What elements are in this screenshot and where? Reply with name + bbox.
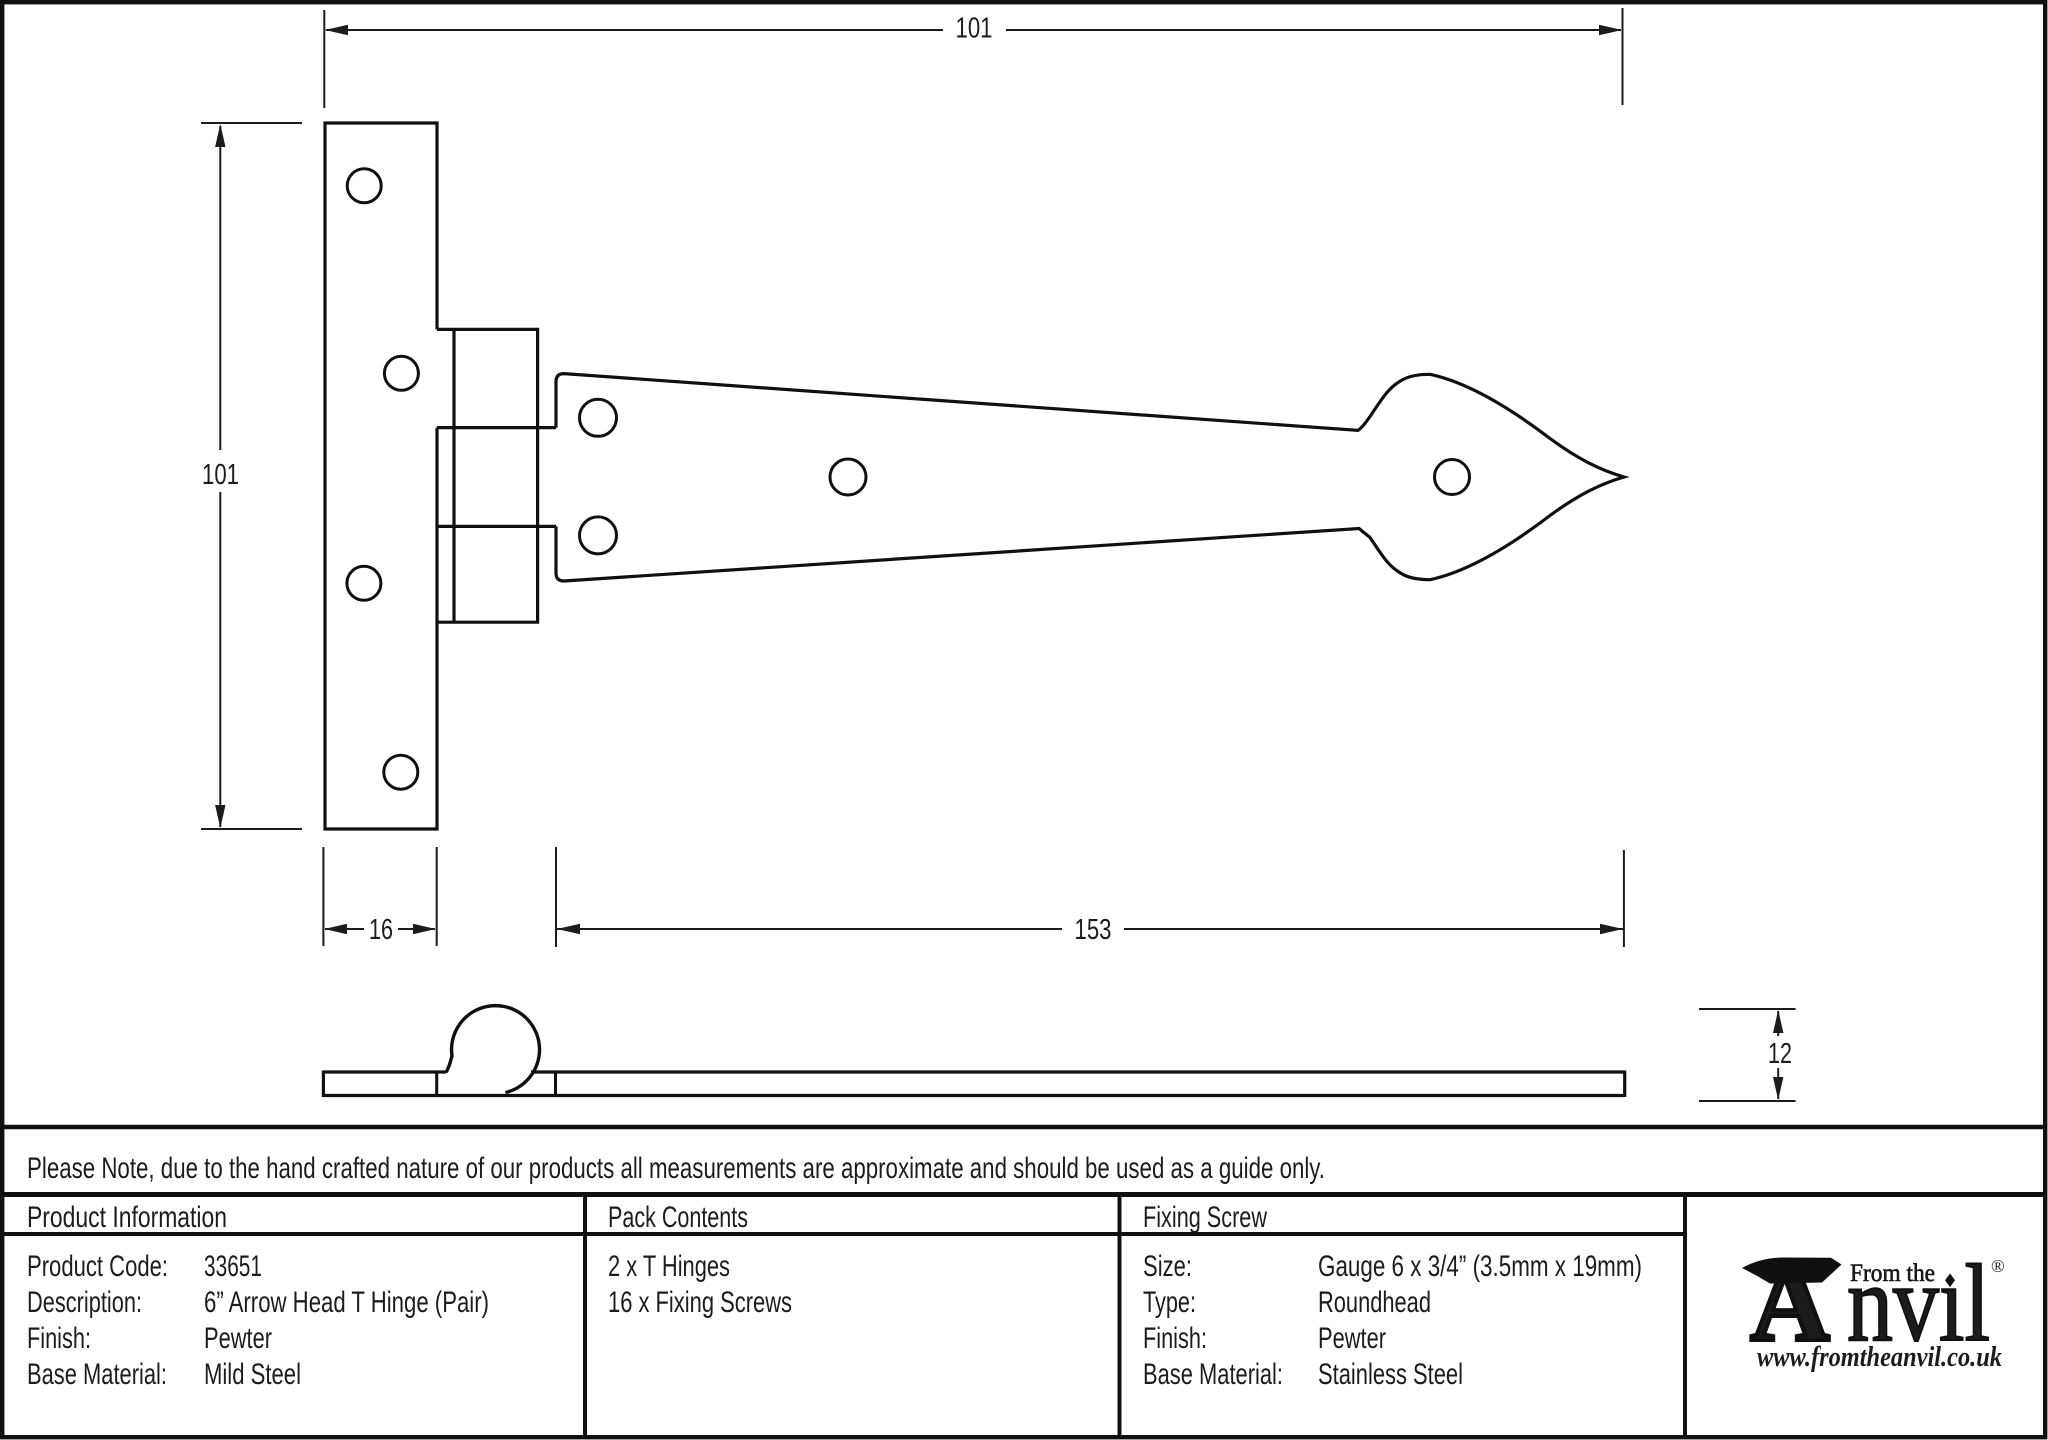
svg-text:33651: 33651: [204, 1250, 262, 1283]
svg-text:Product Information: Product Information: [27, 1201, 227, 1234]
svg-text:Base Material:: Base Material:: [27, 1358, 167, 1391]
svg-text:Description:: Description:: [27, 1286, 142, 1319]
svg-text:Finish:: Finish:: [1143, 1322, 1207, 1355]
svg-text:Type:: Type:: [1143, 1286, 1196, 1319]
svg-text:12: 12: [1768, 1038, 1792, 1070]
svg-text:Mild Steel: Mild Steel: [204, 1358, 301, 1391]
svg-text:16: 16: [369, 914, 393, 946]
svg-text:Base Material:: Base Material:: [1143, 1358, 1283, 1391]
svg-text:Please Note, due to the hand c: Please Note, due to the hand crafted nat…: [27, 1152, 1325, 1185]
svg-text:Pack Contents: Pack Contents: [608, 1201, 748, 1234]
svg-text:Finish:: Finish:: [27, 1322, 91, 1355]
svg-text:Stainless Steel: Stainless Steel: [1318, 1358, 1463, 1391]
svg-text:16 x Fixing Screws: 16 x Fixing Screws: [608, 1286, 792, 1319]
svg-text:Fixing Screw: Fixing Screw: [1143, 1201, 1267, 1234]
svg-text:153: 153: [1075, 914, 1112, 946]
svg-text:Size:: Size:: [1143, 1250, 1192, 1283]
svg-text:Pewter: Pewter: [204, 1322, 272, 1355]
svg-text:101: 101: [956, 13, 993, 45]
svg-text:Pewter: Pewter: [1318, 1322, 1386, 1355]
svg-text:Product Code:: Product Code:: [27, 1250, 168, 1283]
svg-text:www.fromtheanvil.co.uk: www.fromtheanvil.co.uk: [1757, 1342, 2002, 1373]
svg-text:Roundhead: Roundhead: [1318, 1286, 1431, 1319]
svg-text:2 x T Hinges: 2 x T Hinges: [608, 1250, 730, 1283]
svg-text:101: 101: [202, 459, 239, 491]
svg-text:®: ®: [1991, 1256, 2005, 1276]
svg-text:Gauge 6 x 3/4” (3.5mm x 19mm): Gauge 6 x 3/4” (3.5mm x 19mm): [1318, 1250, 1642, 1283]
svg-text:6” Arrow Head T Hinge (Pair): 6” Arrow Head T Hinge (Pair): [204, 1286, 489, 1319]
